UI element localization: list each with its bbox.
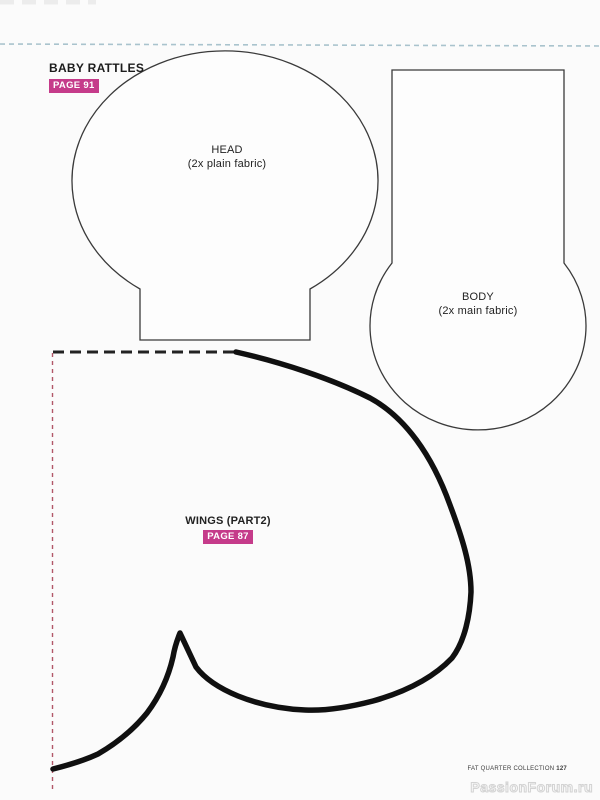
header: BABY RATTLES PAGE 91 — [49, 61, 144, 93]
footer: FAT QUARTER COLLECTION 127 — [467, 766, 567, 772]
body-piece-label: BODY (2x main fabric) — [378, 291, 578, 318]
head-piece-name: HEAD — [127, 144, 327, 158]
body-piece-outline — [370, 70, 586, 430]
pattern-page: BABY RATTLES PAGE 91 HEAD (2x plain fabr… — [0, 0, 600, 800]
head-piece-outline — [72, 51, 378, 340]
page-91-badge: PAGE 91 — [49, 79, 99, 93]
body-piece-name: BODY — [378, 291, 578, 305]
wings-piece-outline — [53, 352, 471, 769]
wings-piece-label: WINGS (PART2) PAGE 87 — [128, 515, 328, 544]
cut-line-dashed-blue — [0, 44, 600, 46]
wings-piece-name: WINGS (PART2) — [128, 515, 328, 529]
watermark-text: PassionForum.ru — [470, 779, 593, 795]
page-87-badge: PAGE 87 — [203, 530, 253, 544]
pattern-linework — [0, 0, 600, 800]
head-piece-note: (2x plain fabric) — [127, 158, 327, 172]
head-piece-label: HEAD (2x plain fabric) — [127, 144, 327, 171]
footer-page-number: 127 — [556, 766, 567, 772]
footer-collection-text: FAT QUARTER COLLECTION — [467, 766, 556, 772]
page-title: BABY RATTLES — [49, 61, 144, 75]
body-piece-note: (2x main fabric) — [378, 305, 578, 319]
